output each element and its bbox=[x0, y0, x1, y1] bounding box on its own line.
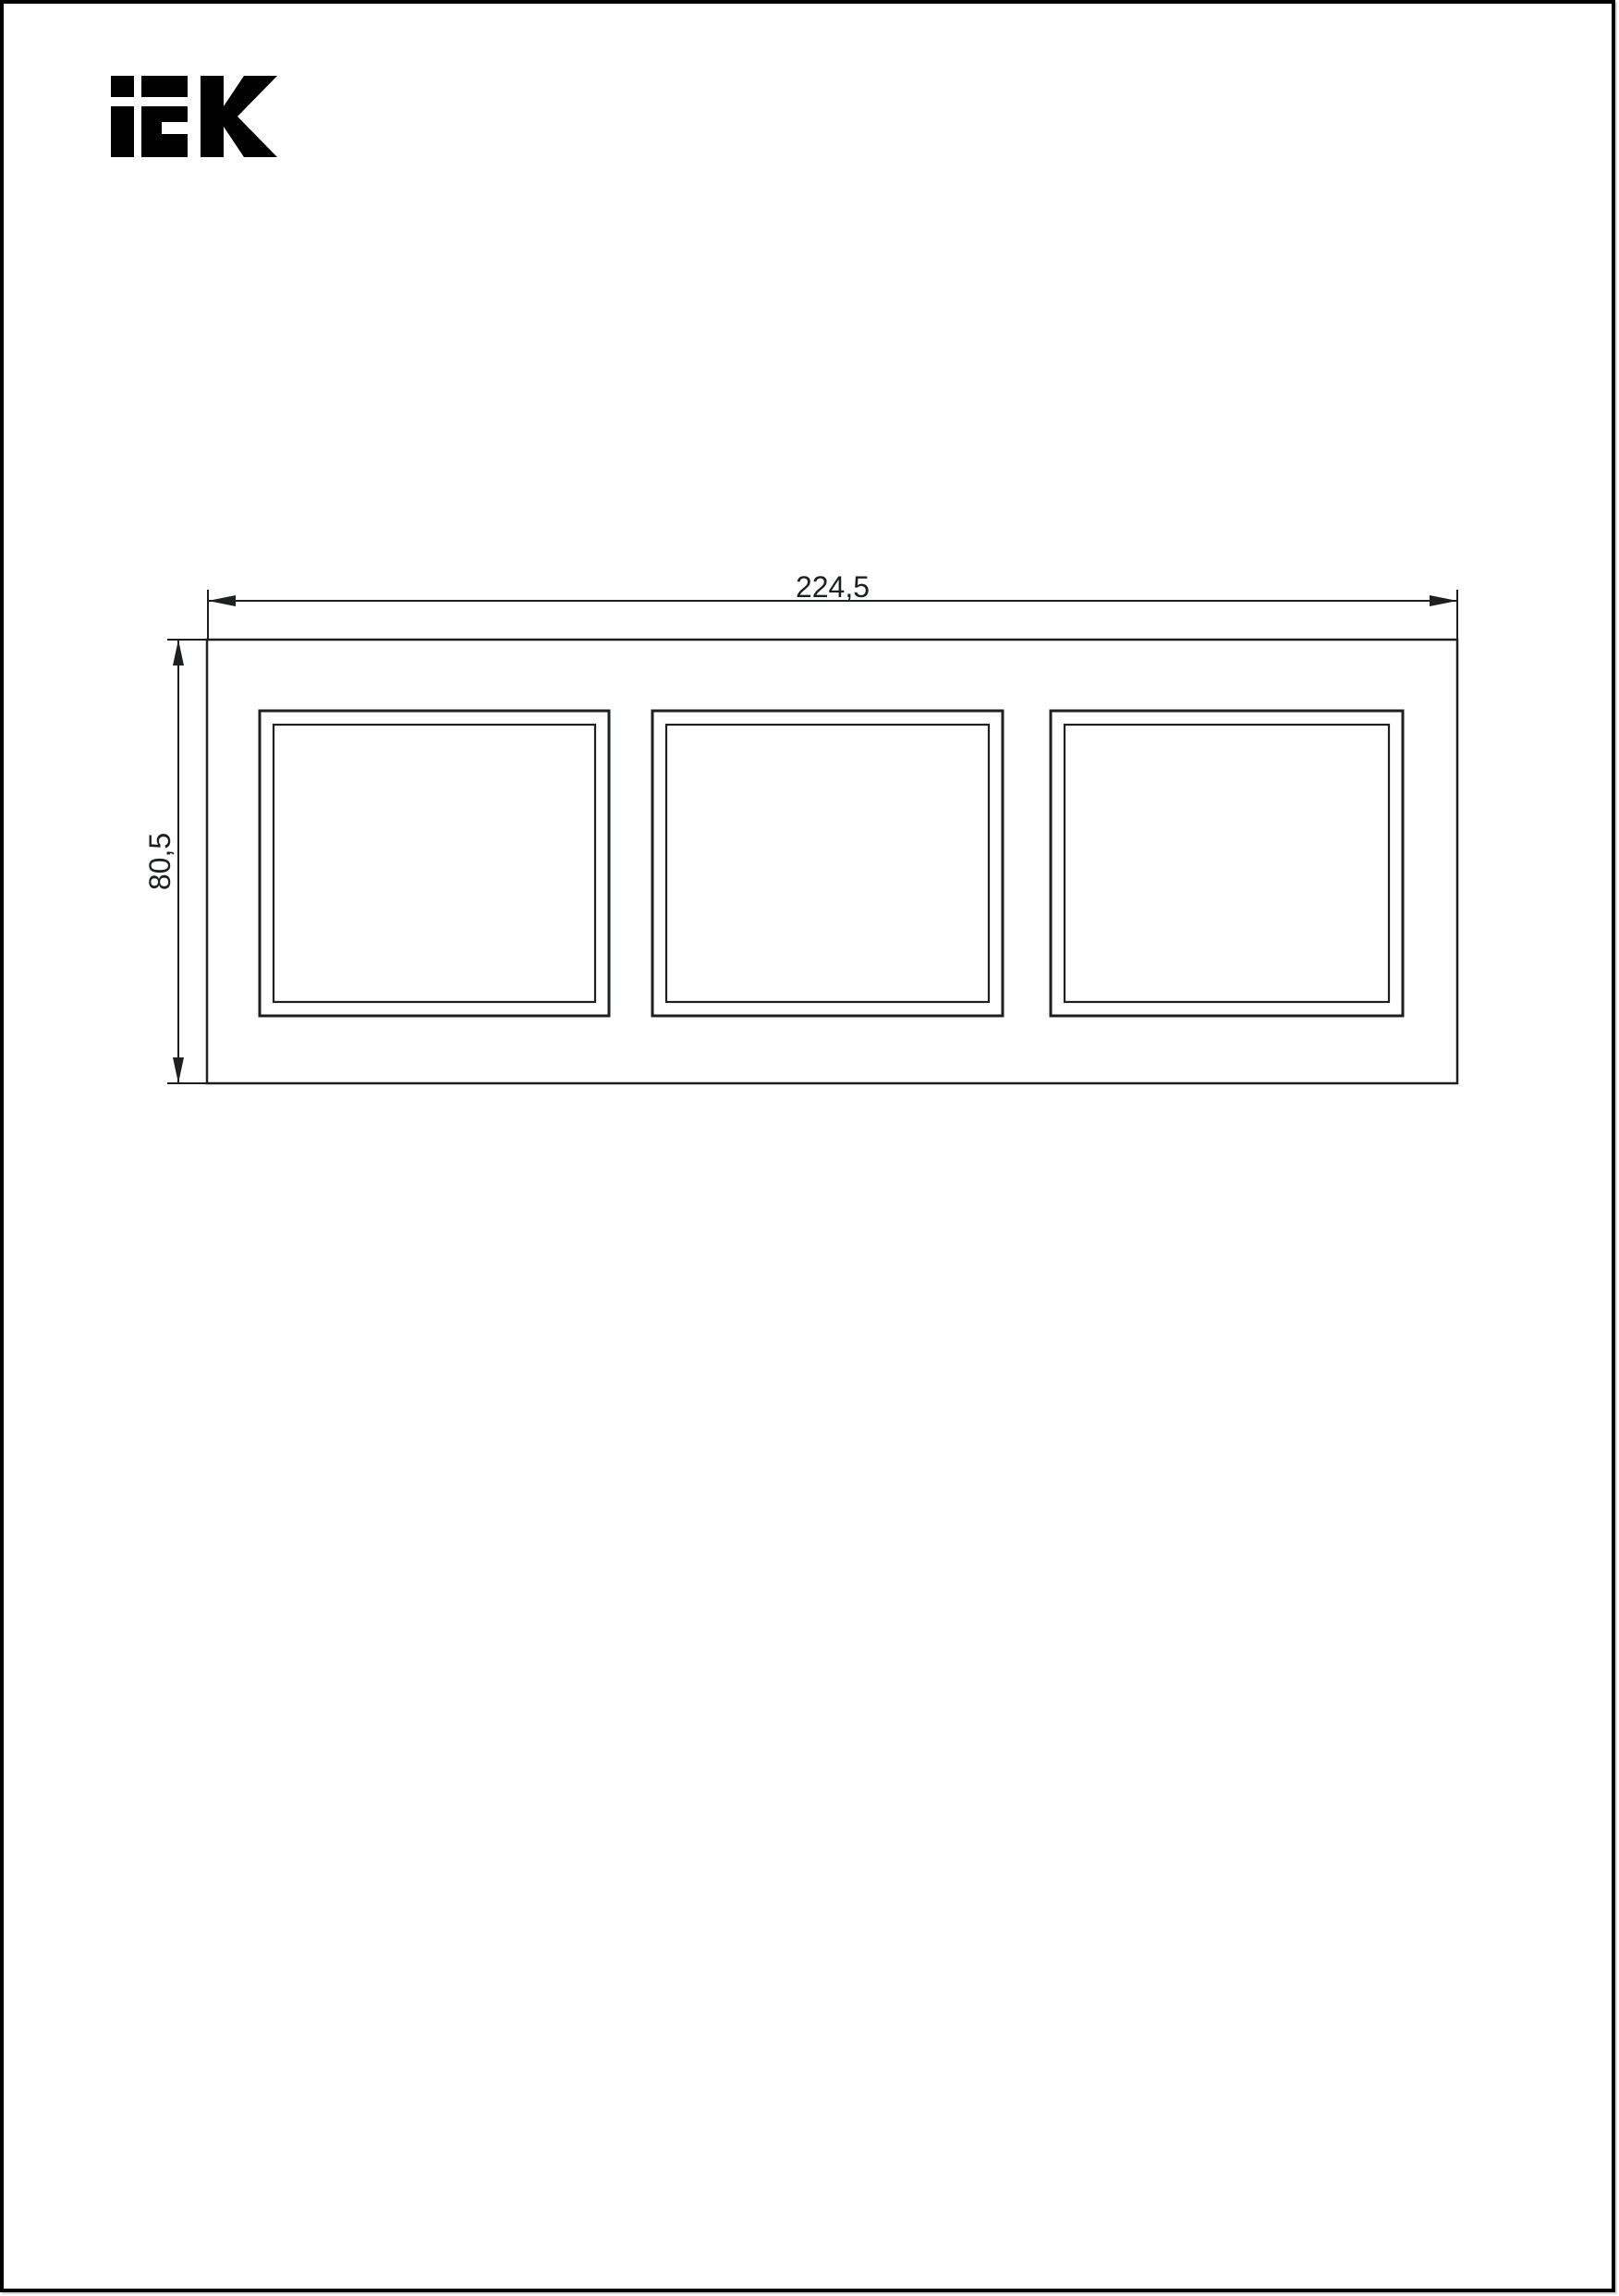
arrowhead-right bbox=[1430, 595, 1457, 606]
frame-window-2 bbox=[652, 711, 1003, 1016]
window-inner-rim bbox=[666, 725, 989, 1002]
dim-width-label: 224,5 bbox=[796, 570, 870, 604]
window-outer-rim bbox=[260, 711, 609, 1016]
frame-technical-drawing: 224,5 80,5 bbox=[0, 0, 1619, 2296]
window-inner-rim bbox=[1065, 725, 1389, 1002]
frame-window-3 bbox=[1051, 711, 1403, 1016]
dimension-width: 224,5 bbox=[208, 570, 1457, 641]
arrowhead-up bbox=[173, 640, 184, 666]
arrowhead-down bbox=[173, 1057, 184, 1083]
frame-window-1 bbox=[260, 711, 609, 1016]
dim-height-label: 80,5 bbox=[143, 833, 177, 890]
dimension-height: 80,5 bbox=[143, 640, 208, 1083]
arrowhead-left bbox=[208, 595, 236, 606]
window-outer-rim bbox=[1051, 711, 1403, 1016]
window-inner-rim bbox=[274, 725, 595, 1002]
drawing-sheet: 224,5 80,5 bbox=[0, 0, 1619, 2296]
window-outer-rim bbox=[652, 711, 1003, 1016]
